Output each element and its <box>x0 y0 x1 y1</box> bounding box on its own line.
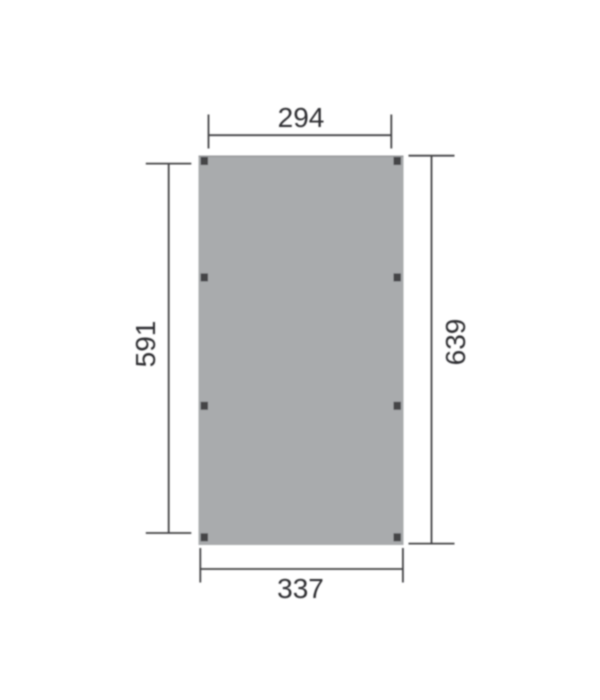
svg-text:591: 591 <box>130 321 161 368</box>
svg-text:337: 337 <box>277 573 324 604</box>
svg-text:294: 294 <box>278 102 325 133</box>
svg-text:639: 639 <box>440 319 471 366</box>
